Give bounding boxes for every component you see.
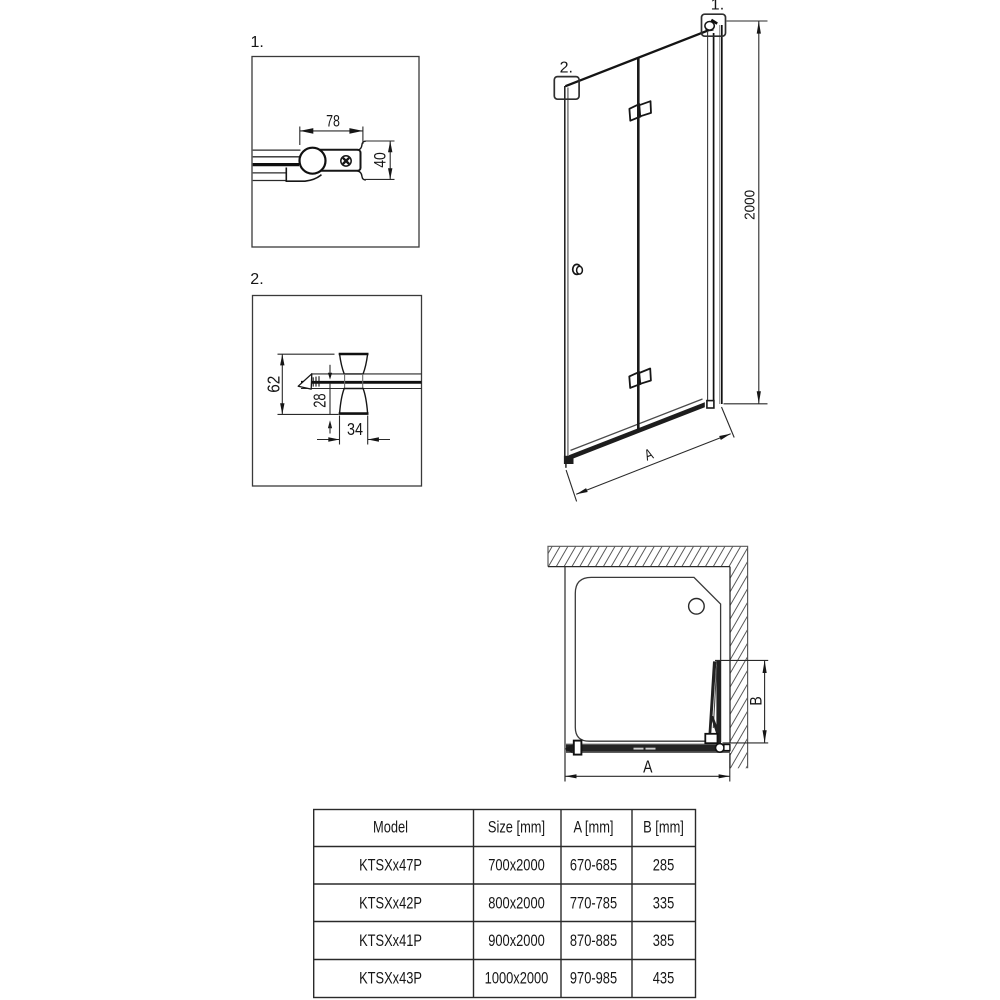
svg-text:28: 28 — [311, 393, 331, 408]
svg-text:KTSXx47P: KTSXx47P — [359, 857, 422, 875]
svg-text:435: 435 — [653, 970, 674, 988]
svg-text:285: 285 — [653, 857, 674, 875]
svg-text:770-785: 770-785 — [570, 895, 617, 913]
svg-text:970-985: 970-985 — [570, 970, 617, 988]
svg-text:Size [mm]: Size [mm] — [488, 819, 545, 837]
svg-text:335: 335 — [653, 895, 674, 913]
svg-text:2000: 2000 — [742, 190, 759, 220]
svg-text:62: 62 — [263, 376, 283, 393]
svg-text:700x2000: 700x2000 — [488, 857, 544, 875]
svg-text:870-885: 870-885 — [570, 932, 617, 950]
svg-text:40: 40 — [372, 152, 390, 167]
svg-text:34: 34 — [347, 420, 363, 440]
svg-text:800x2000: 800x2000 — [488, 895, 544, 913]
svg-text:KTSXx42P: KTSXx42P — [359, 895, 422, 913]
svg-text:78: 78 — [326, 113, 340, 131]
svg-text:900x2000: 900x2000 — [488, 932, 544, 950]
svg-text:KTSXx41P: KTSXx41P — [359, 932, 422, 950]
svg-text:A: A — [643, 757, 653, 777]
svg-text:B [mm]: B [mm] — [643, 819, 684, 837]
svg-text:1.: 1. — [251, 34, 264, 51]
svg-text:2.: 2. — [250, 271, 263, 288]
svg-text:KTSXx43P: KTSXx43P — [359, 970, 422, 988]
svg-text:385: 385 — [653, 932, 674, 950]
svg-text:2.: 2. — [560, 60, 573, 77]
svg-text:670-685: 670-685 — [570, 857, 617, 875]
svg-text:A [mm]: A [mm] — [573, 819, 613, 837]
svg-text:1.: 1. — [711, 0, 724, 14]
svg-text:Model: Model — [373, 819, 408, 837]
svg-text:1000x2000: 1000x2000 — [485, 970, 549, 988]
svg-text:B: B — [747, 696, 765, 705]
